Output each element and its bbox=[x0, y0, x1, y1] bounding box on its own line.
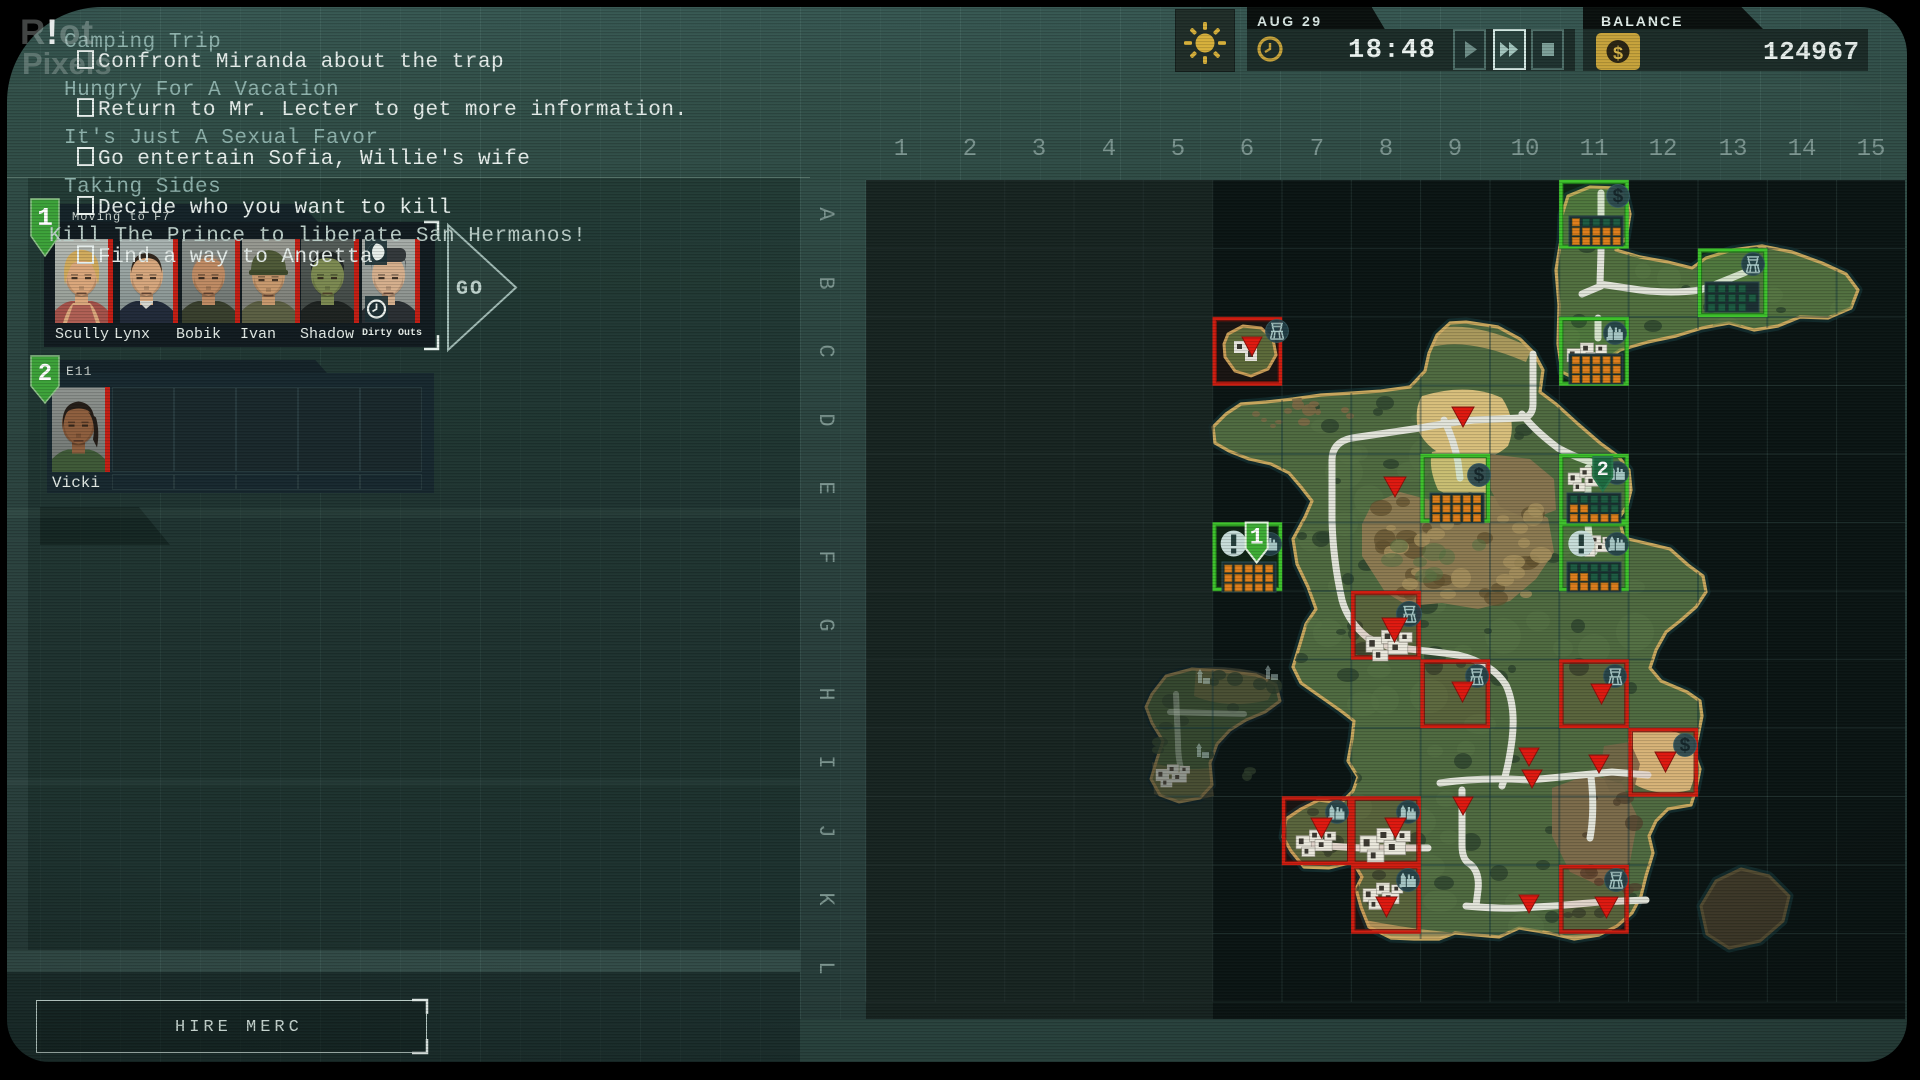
svg-text:15: 15 bbox=[1857, 136, 1886, 163]
svg-text:3: 3 bbox=[1032, 136, 1046, 163]
svg-text:4: 4 bbox=[1102, 136, 1116, 163]
svg-text:2: 2 bbox=[1597, 459, 1609, 482]
svg-text:5: 5 bbox=[1171, 136, 1185, 163]
svg-text:6: 6 bbox=[1240, 136, 1254, 163]
svg-text:1: 1 bbox=[894, 136, 908, 163]
svg-text:I: I bbox=[813, 755, 838, 768]
svg-text:7: 7 bbox=[1310, 136, 1324, 163]
svg-text:F: F bbox=[813, 550, 838, 563]
svg-text:C: C bbox=[813, 344, 838, 357]
svg-text:11: 11 bbox=[1580, 136, 1609, 163]
svg-text:9: 9 bbox=[1448, 136, 1462, 163]
svg-text:$: $ bbox=[1612, 186, 1623, 208]
svg-text:2: 2 bbox=[38, 361, 52, 388]
svg-text:$: $ bbox=[1679, 735, 1690, 757]
svg-text:8: 8 bbox=[1379, 136, 1393, 163]
svg-text:1: 1 bbox=[1250, 525, 1264, 551]
svg-text:K: K bbox=[813, 892, 838, 906]
svg-text:13: 13 bbox=[1719, 136, 1748, 163]
svg-text:12: 12 bbox=[1649, 136, 1678, 163]
svg-text:E: E bbox=[813, 481, 838, 494]
svg-text:GO: GO bbox=[456, 278, 484, 301]
svg-text:A: A bbox=[813, 207, 838, 221]
svg-text:$: $ bbox=[1613, 45, 1624, 65]
svg-text:G: G bbox=[813, 618, 838, 631]
svg-text:J: J bbox=[813, 824, 838, 837]
svg-text:$: $ bbox=[1473, 465, 1484, 487]
svg-text:H: H bbox=[813, 687, 838, 700]
svg-text:D: D bbox=[813, 413, 838, 426]
svg-text:B: B bbox=[813, 276, 838, 289]
svg-text:10: 10 bbox=[1511, 136, 1540, 163]
svg-text:14: 14 bbox=[1788, 136, 1817, 163]
svg-text:L: L bbox=[813, 961, 838, 974]
svg-text:2: 2 bbox=[963, 136, 977, 163]
